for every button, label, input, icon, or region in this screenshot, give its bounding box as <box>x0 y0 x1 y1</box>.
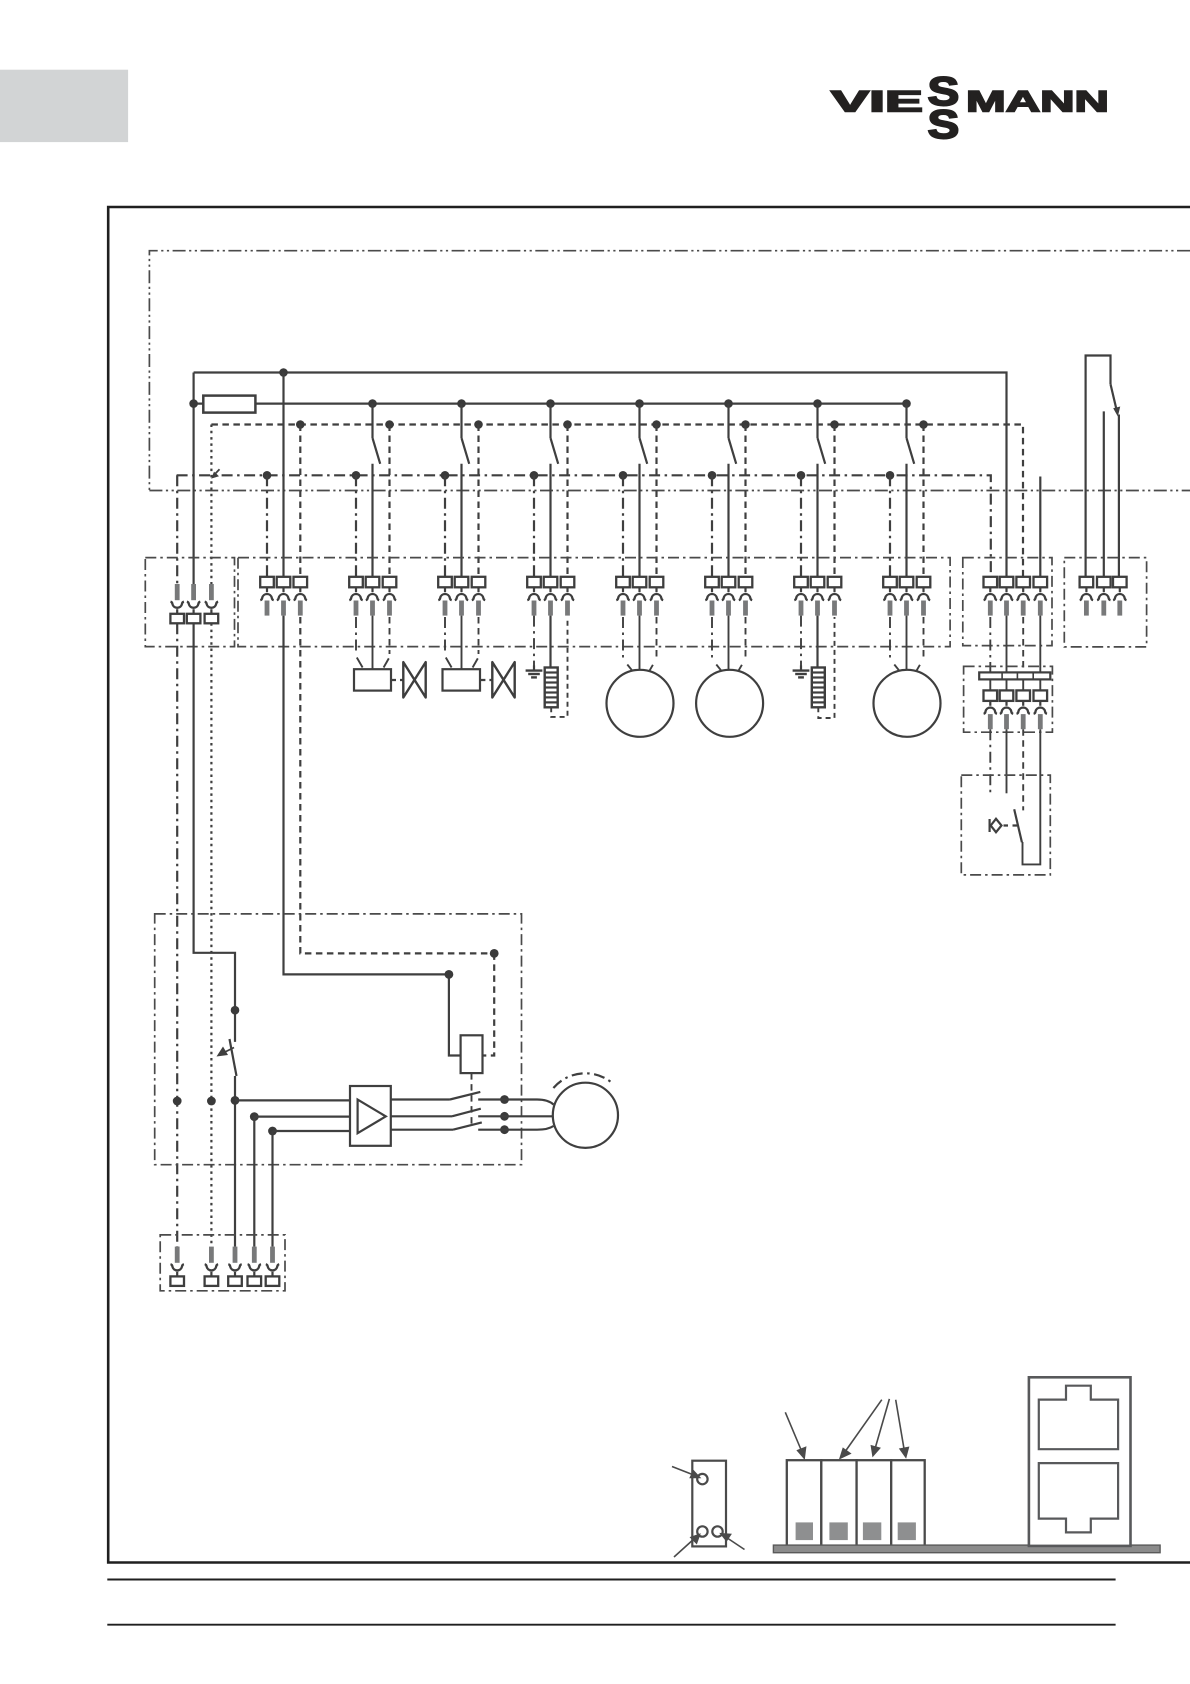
svg-text:S: S <box>928 103 960 147</box>
svg-text:VIE: VIE <box>831 86 923 119</box>
svg-text:MANN: MANN <box>966 86 1109 119</box>
